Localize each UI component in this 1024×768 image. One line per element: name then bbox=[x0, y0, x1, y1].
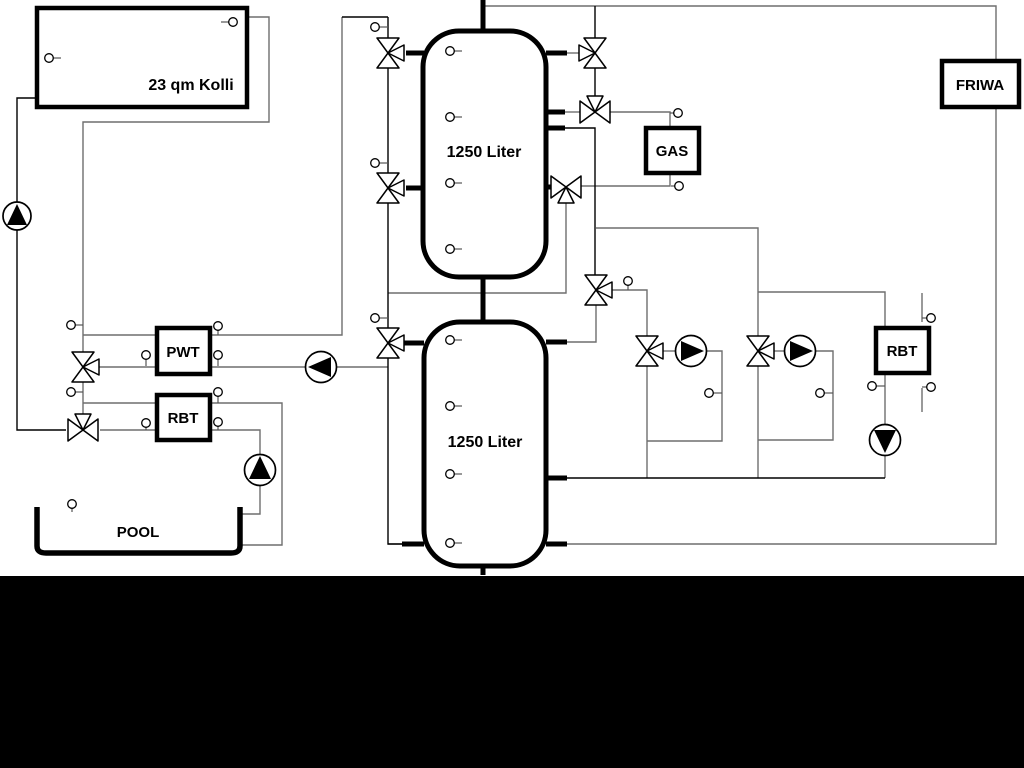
pump-rbt-right[interactable] bbox=[870, 425, 901, 456]
temperature-sensor bbox=[214, 351, 223, 366]
temperature-sensor bbox=[868, 382, 885, 391]
three-way-valve-gas-feed[interactable] bbox=[580, 96, 610, 123]
pump-heating-circuit-1[interactable] bbox=[676, 336, 707, 367]
bottom-black-band bbox=[0, 576, 1024, 768]
pool-label: POOL bbox=[117, 524, 160, 541]
temperature-sensor bbox=[214, 418, 223, 430]
pump-heating-circuit-2[interactable] bbox=[785, 336, 816, 367]
temperature-sensor bbox=[816, 389, 833, 398]
three-way-valve-gas-return[interactable] bbox=[551, 176, 581, 203]
pump-pool[interactable] bbox=[245, 455, 276, 486]
temperature-sensor bbox=[142, 351, 151, 366]
three-way-valve-heating-circuit-2[interactable] bbox=[747, 336, 774, 366]
three-way-valve-pool[interactable] bbox=[68, 414, 98, 441]
temperature-sensor bbox=[922, 314, 935, 323]
three-way-valve-heating-circuit-1[interactable] bbox=[636, 336, 663, 366]
temperature-sensor bbox=[371, 23, 388, 32]
three-way-valve-tank1-right-top[interactable] bbox=[579, 38, 606, 68]
three-way-valve-tank1-left-mid[interactable] bbox=[377, 173, 404, 203]
temperature-sensor bbox=[67, 388, 83, 397]
temperature-sensor bbox=[671, 182, 683, 191]
three-way-valve-heating-header[interactable] bbox=[585, 275, 612, 305]
pwt-label: PWT bbox=[166, 344, 199, 361]
temperature-sensor bbox=[371, 314, 388, 323]
rbt-left-label: RBT bbox=[168, 410, 199, 427]
temperature-sensor bbox=[922, 383, 935, 392]
temperature-sensor bbox=[371, 159, 388, 168]
hydraulic-diagram: 23 qm Kolli 1250 Liter 1250 Liter GAS FR… bbox=[0, 0, 1024, 768]
temperature-sensor bbox=[670, 109, 682, 118]
three-way-valve-pwt[interactable] bbox=[72, 352, 99, 382]
temperature-sensor bbox=[214, 388, 223, 403]
schematic-page: 23 qm Kolli 1250 Liter 1250 Liter GAS FR… bbox=[0, 0, 1024, 768]
tank1-label: 1250 Liter bbox=[447, 144, 522, 161]
temperature-sensor bbox=[142, 419, 151, 430]
pump-solar-primary[interactable] bbox=[3, 202, 31, 230]
temperature-sensor bbox=[214, 322, 223, 335]
three-way-valve-tank1-left-top[interactable] bbox=[377, 38, 404, 68]
rbt-right-label: RBT bbox=[887, 343, 918, 360]
pump-pwt-secondary[interactable] bbox=[306, 352, 337, 383]
temperature-sensor bbox=[67, 321, 83, 330]
temperature-sensor bbox=[624, 277, 633, 290]
temperature-sensor bbox=[705, 389, 722, 398]
tank2-label: 1250 Liter bbox=[448, 434, 523, 451]
three-way-valve-tank2-left[interactable] bbox=[377, 328, 404, 358]
temperature-sensor bbox=[68, 500, 77, 512]
friwa-label: FRIWA bbox=[956, 77, 1004, 94]
gas-label: GAS bbox=[656, 143, 689, 160]
collector-label: 23 qm Kolli bbox=[148, 77, 233, 94]
